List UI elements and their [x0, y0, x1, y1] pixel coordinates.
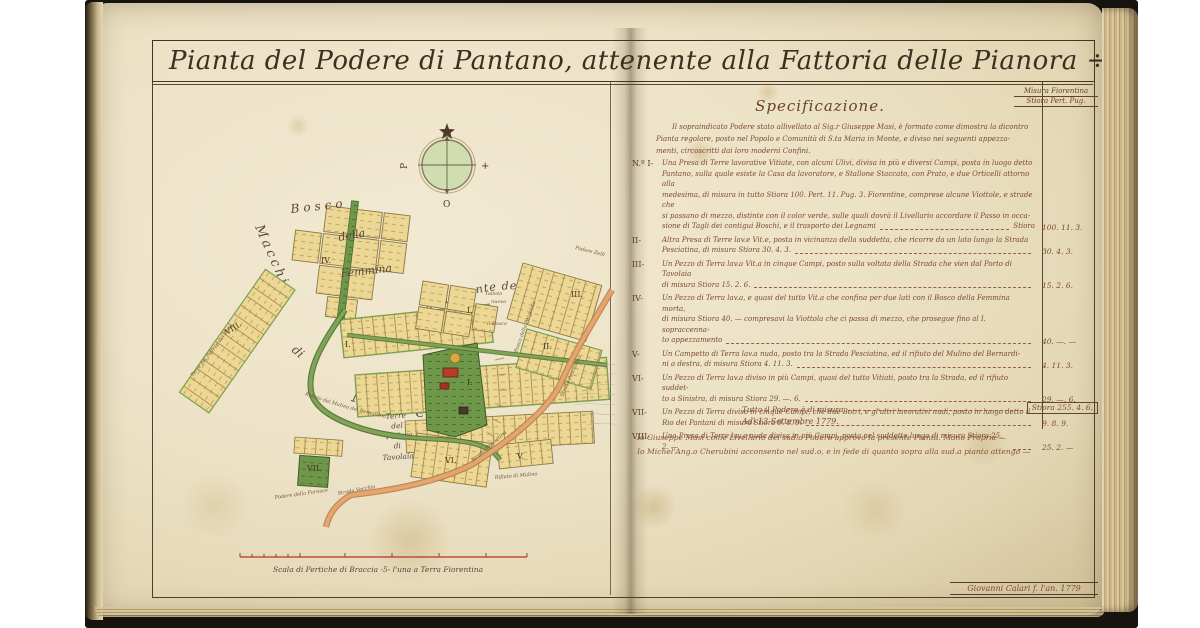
scale-caption: Scala di Pertiche di Braccia -5- l'una a…	[273, 565, 483, 574]
item-measure-value: 15. 2. 6.	[1035, 281, 1098, 290]
spec-heading: Specificazione.	[730, 97, 910, 115]
total-value: Stiora 255. 4. 6.	[1027, 402, 1098, 414]
parcel-numeral-iii: III.	[571, 290, 583, 299]
map-label-di: di	[289, 343, 307, 361]
cartographer-signature: Giovanni Calari f. l'an. 1779	[950, 582, 1098, 595]
parcel-numeral-i-band: I.	[345, 340, 351, 349]
scanned-map-page: Pianta del Podere di Pantano, attenente …	[0, 0, 1200, 628]
parcel-cluster-vii	[292, 437, 343, 488]
item-line: Pantano, sulla quale esiste la Casa da l…	[662, 169, 1035, 190]
item-measure-value: 4. 11. 3.	[1035, 361, 1098, 370]
item-text: Un Pezzo di Terra lav.a, e quasi del tut…	[662, 293, 1035, 346]
map-label-talleto: Talleto	[485, 291, 502, 297]
dash-leader	[880, 221, 1010, 230]
parcel-numeral-i-talleto: I.	[467, 306, 473, 315]
item-line: Un Pezzo di Terra lav.a Vit.a in cinque …	[662, 259, 1035, 280]
spec-item: IV-Un Pezzo di Terra lav.a, e quasi del …	[632, 293, 1098, 346]
item-line: si passano di mezzo, distinte con il col…	[662, 211, 1035, 222]
book-photo: Pianta del Podere di Pantano, attenente …	[85, 0, 1138, 628]
item-line: Un Campetto di Terra lav.a nuda, posto t…	[662, 349, 1035, 360]
dash-leader	[805, 394, 1031, 403]
signature-line-2: Io Michel'Ang.o Cherubini acconsento nel…	[637, 445, 1077, 459]
signature-block: Io Giuseppe Masi come Livellario del sud…	[637, 431, 1077, 459]
item-text: Altra Presa di Terre lav.e Vit.e, posta …	[662, 235, 1035, 256]
parcel-numeral-iv: IV.	[321, 256, 331, 265]
spec-item: N.º I-Una Presa di Terre lavorative Viti…	[632, 158, 1098, 232]
map-label-il-bosco: il Bosco	[487, 321, 507, 327]
item-line: Altra Presa di Terre lav.e Vit.e, posta …	[662, 235, 1035, 246]
spec-item: II-Altra Presa di Terre lav.e Vit.e, pos…	[632, 235, 1098, 256]
dash-leader	[795, 245, 1031, 254]
item-line: di misura Stiora 40. — compresavi la Vio…	[662, 314, 1035, 335]
book-left-page-stack	[85, 2, 103, 620]
item-numeral: V-	[632, 349, 662, 370]
spec-intro: Il sopraindicato Podere stato allivellat…	[650, 121, 1042, 157]
item-text: Un Campetto di Terra lav.a nuda, posto t…	[662, 349, 1035, 370]
item-text: Un Pezzo di Terra lav.a diviso in più Ca…	[662, 373, 1035, 405]
intro-line: menti, circoscritti dai loro moderni Con…	[650, 145, 1042, 157]
map-label-nuovo: nuovo	[491, 299, 506, 305]
farmhouse-icon	[443, 368, 458, 377]
item-measure-value: 100. 11. 3.	[1035, 223, 1098, 232]
stable-icon	[440, 383, 449, 389]
item-text: Una Presa di Terre lavorative Vitiate, c…	[662, 158, 1035, 232]
item-numeral: III-	[632, 259, 662, 291]
compass-east-label: +	[481, 161, 489, 172]
total-label: Tutto il Podere è di misura	[742, 405, 844, 414]
title-box: Pianta del Podere di Pantano, attenente …	[152, 40, 1095, 82]
item-line: ni a destra, di misura Stiora 4. 11. 3.	[662, 359, 1035, 370]
item-line: Una Presa di Terre lavorative Vitiate, c…	[662, 158, 1035, 169]
item-line: di misura Stiora 15. 2. 6.	[662, 280, 1035, 291]
item-line: sione di Tagli dei contigui Boschi, e il…	[662, 221, 1035, 232]
dash-leader	[848, 410, 1023, 411]
item-line: Un Pezzo di Terra lav.a, e quasi del tut…	[662, 293, 1035, 314]
item-line: Un Pezzo di Terra lav.a diviso in più Ca…	[662, 373, 1035, 394]
compass-south-label: O	[443, 200, 450, 210]
homestead-parcel: I.	[423, 343, 487, 437]
item-line: medesima, di misura in tutto Stiora 100.…	[662, 190, 1035, 211]
spec-item: VI-Un Pezzo di Terra lav.a diviso in più…	[632, 373, 1098, 405]
compass-rose: P + O	[400, 123, 489, 210]
dash-leader	[806, 418, 1031, 427]
map-label-rifiuto-mulino: Rifiuto di Mulino	[494, 471, 538, 481]
map-label-fornace: Podere della Fornace	[273, 488, 328, 502]
dash-leader	[797, 359, 1031, 368]
book-fore-edge	[1102, 8, 1138, 612]
item-measure-value: 40. —. —	[1035, 337, 1098, 346]
intro-line: Il sopraindicato Podere stato allivellat…	[650, 121, 1042, 133]
corner-note-line2: Stiora Pert. Pug.	[1014, 97, 1098, 107]
svg-text:di: di	[393, 441, 401, 451]
corner-note-line1: Misura Fiorentina	[1014, 87, 1098, 97]
corner-note: Misura Fiorentina Stiora Pert. Pug.	[1014, 87, 1098, 107]
item-measure-value: 9. 8. 9.	[1035, 419, 1098, 428]
item-measure-value: 30. 4. 3.	[1035, 247, 1098, 256]
spec-item: V-Un Campetto di Terra lav.a nuda, posto…	[632, 349, 1098, 370]
item-line: to appezzamento	[662, 335, 1035, 346]
parcel-numeral-v: V.	[516, 452, 524, 461]
dash-leader	[754, 280, 1031, 289]
intro-line: Pianta regolare, posto nel Popolo e Comu…	[650, 133, 1042, 145]
map-svg: P + O IV.	[155, 85, 615, 587]
parcel-numeral-vii: VII.	[306, 464, 322, 473]
scale-bar	[240, 553, 527, 557]
spec-item: III-Un Pezzo di Terra lav.a Vit.a in cin…	[632, 259, 1098, 291]
signature-line-1: Io Giuseppe Masi come Livellario del sud…	[637, 431, 1077, 445]
dash-leader	[726, 335, 1031, 344]
compass-west-label: P	[400, 163, 410, 169]
svg-text:Terre: Terre	[385, 411, 407, 421]
spec-total-row: Tutto il Podere è di misura Stiora 255. …	[742, 402, 1098, 414]
item-numeral: N.º I-	[632, 158, 662, 232]
value-prefix: Stiora	[1013, 221, 1035, 232]
map-label-podere-zelli: Podere Zelli	[574, 245, 606, 259]
item-line: Pesciatina, di misura Stiora 30. 4. 3.	[662, 245, 1035, 256]
item-line: Rio dei Pantani di misura Stiora 9. 8. 9…	[662, 418, 1035, 429]
item-numeral: IV-	[632, 293, 662, 346]
book-bottom-page-edges	[95, 607, 1105, 617]
item-numeral: VI-	[632, 373, 662, 405]
item-numeral: II-	[632, 235, 662, 256]
parcel-numeral-i-casa: I.	[467, 378, 473, 387]
item-text: Un Pezzo di Terra lav.a Vit.a in cinque …	[662, 259, 1035, 291]
item-numeral: VII-	[632, 407, 662, 428]
date-line: Adì 13 Settembre 1779.	[742, 417, 839, 426]
outbuilding-icon	[459, 407, 468, 414]
parcel-numeral-ii: II.	[543, 342, 552, 351]
threshing-floor	[450, 353, 460, 363]
parcel-numeral-vi: VI.	[444, 456, 456, 465]
parcel-viii	[179, 269, 295, 413]
svg-text:del: del	[391, 421, 404, 431]
page-title: Pianta del Podere di Pantano, attenente …	[153, 46, 1109, 76]
svg-text:Tavolaia: Tavolaia	[382, 451, 414, 462]
